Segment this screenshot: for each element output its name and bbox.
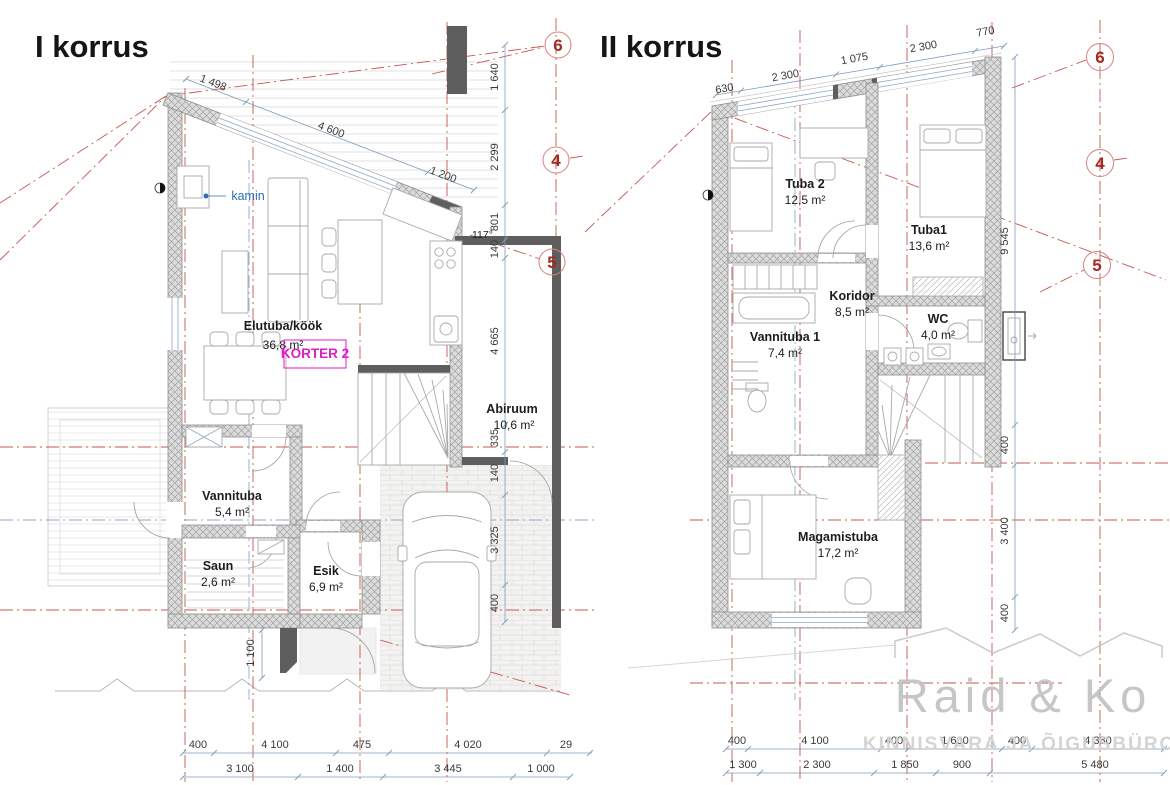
dim-top-3: 2 300 (909, 39, 938, 56)
rdim-bottom2-2: 1 850 (891, 759, 919, 771)
rdim-bottom2-0: 1 300 (729, 759, 757, 771)
bubble-4: 4 (551, 151, 561, 170)
dim-top-1: 2 300 (771, 68, 800, 85)
dim-side-1100: 1 100 (245, 639, 257, 667)
rdim-bottom1-0: 400 (728, 735, 746, 747)
bathtub (733, 293, 815, 323)
watermark-leader-line (628, 645, 895, 668)
room-esik-name: Esik (313, 564, 339, 578)
dim-bottom1-1: 4 100 (261, 739, 289, 751)
coffee-table (222, 251, 248, 313)
room-koridor-area: 8,5 m² (835, 305, 869, 319)
closet-shelf-vannituba1 (733, 265, 817, 289)
dim-bottom1-0: 400 (189, 739, 207, 751)
bubble-5-right: 5 (1092, 256, 1101, 275)
wardrobe-magamistuba (878, 455, 905, 520)
rdim-right-2: 3 400 (999, 517, 1011, 545)
room-vannituba-area: 5,4 m² (215, 505, 249, 519)
watermark-tagline: KINNISVARA JA ÕIGUSBÜROO (863, 733, 1170, 755)
room-tuba2-name: Tuba 2 (785, 177, 824, 191)
room-tuba1-name: Tuba1 (911, 223, 947, 237)
room-magamistuba-area: 17,2 m² (818, 546, 859, 560)
dim-bottom2-1: 1 400 (326, 763, 354, 775)
room-wc-name: WC (928, 312, 949, 326)
dim-roof-1: 4 600 (316, 120, 346, 141)
bubble-5: 5 (547, 253, 556, 272)
korter-2-label: KORTER 2 (281, 346, 349, 361)
room-koridor-name: Koridor (829, 289, 874, 303)
bubble-6-right: 6 (1095, 48, 1104, 67)
room-vannituba1-name: Vannituba 1 (750, 330, 820, 344)
room-abiruum-area: 10,6 m² (494, 418, 535, 432)
room-saun-area: 2,6 m² (201, 575, 235, 589)
room-saun-name: Saun (203, 559, 234, 573)
dim-top-4: 770 (975, 25, 995, 40)
dim-roof-2: 1 200 (428, 165, 458, 186)
dim-bottom1-2: 475 (353, 739, 371, 751)
survey-marker-2 (703, 190, 713, 200)
dim-right-3: 140 (489, 240, 501, 258)
angle-label: 117° (472, 229, 493, 241)
right-floor-plan: 630 2 300 1 075 2 300 770 9 545 400 3 40… (585, 20, 1170, 782)
room-wc-area: 4,0 m² (921, 328, 955, 342)
room-vannituba1-area: 7,4 m² (768, 346, 802, 360)
dim-top-2: 1 075 (840, 51, 869, 68)
dim-bottom1-4: 29 (560, 739, 572, 751)
rdim-bottom1-1: 4 100 (801, 735, 829, 747)
radiator-symbol (1003, 312, 1036, 360)
sofa (268, 178, 308, 322)
dim-right-7: 3 325 (489, 526, 501, 554)
watermark: Raid & Ko KINNISVARA JA ÕIGUSBÜROO (628, 628, 1170, 755)
room-elutuba-name: Elutuba/köök (244, 319, 323, 333)
rdim-bottom2-1: 2 300 (803, 759, 831, 771)
rdim-right-1: 400 (999, 436, 1011, 454)
stairs-first-floor (358, 373, 450, 465)
kitchen-table (322, 220, 382, 304)
room-tuba1-area: 13,6 m² (909, 239, 950, 253)
terrace (48, 408, 172, 586)
car (398, 492, 496, 688)
room-tuba2-area: 12,5 m² (785, 193, 826, 207)
left-plan-title: I korrus (35, 29, 149, 64)
kamin-marker-dot (204, 194, 209, 199)
floor-plan-drawing: 1 498 4 600 1 200 1 640 2 299 801 140 4 … (0, 0, 1170, 785)
room-magamistuba-name: Magamistuba (798, 530, 879, 544)
right-plan-title: II korrus (600, 29, 722, 64)
toilet-vannituba1 (746, 383, 768, 412)
dim-right-1: 2 299 (489, 143, 501, 171)
rdim-right-0: 9 545 (999, 227, 1011, 255)
armchair (845, 578, 871, 604)
room-vannituba-name: Vannituba (202, 489, 263, 503)
survey-marker (155, 183, 165, 193)
dim-right-8: 400 (489, 594, 501, 612)
kamin-label: kamin (231, 189, 264, 203)
left-floor-plan: 1 498 4 600 1 200 1 640 2 299 801 140 4 … (0, 18, 596, 782)
bubble-6: 6 (553, 36, 562, 55)
dim-bottom2-3: 1 000 (527, 763, 555, 775)
room-abiruum-name: Abiruum (486, 402, 537, 416)
rdim-bottom2-3: 900 (953, 759, 971, 771)
dim-roof-0: 1 498 (198, 73, 228, 94)
wardrobe-tuba1 (913, 277, 983, 296)
dim-right-4: 4 665 (489, 327, 501, 355)
rdim-bottom2-4: 5 480 (1081, 759, 1109, 771)
porch-floor (300, 628, 376, 674)
bubble-4-right: 4 (1095, 154, 1105, 173)
dim-right-0: 1 640 (489, 63, 501, 91)
dim-top-0: 630 (714, 82, 734, 97)
right-grid-bubbles: 6 4 5 (1084, 44, 1129, 279)
watermark-name: Raid & Ko (895, 669, 1152, 722)
dim-right-6: 140 (489, 464, 501, 482)
bed-tuba2 (730, 143, 772, 231)
dim-bottom2-2: 3 445 (434, 763, 462, 775)
dim-bottom1-3: 4 020 (454, 739, 482, 751)
rdim-right-3: 400 (999, 604, 1011, 622)
bed-tuba1 (920, 125, 986, 217)
watermark-logo-mountains (895, 628, 1162, 658)
dim-bottom2-0: 3 100 (226, 763, 254, 775)
room-esik-area: 6,9 m² (309, 580, 343, 594)
